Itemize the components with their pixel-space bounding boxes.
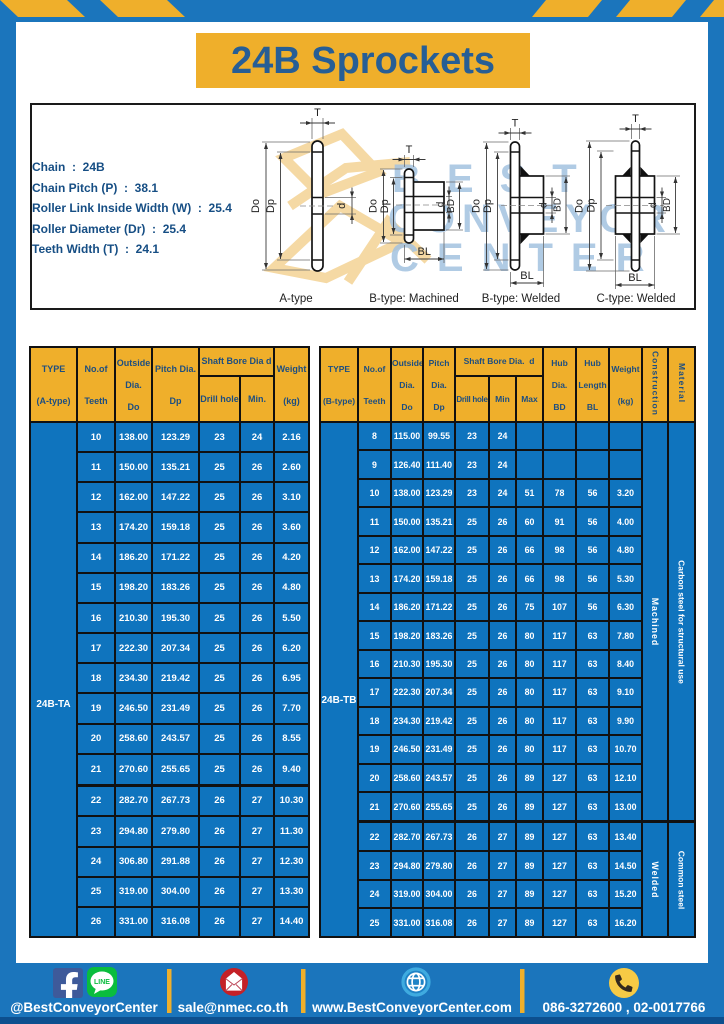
svg-text:Dp: Dp: [379, 199, 391, 213]
svg-text:d: d: [436, 202, 447, 208]
svg-text:T: T: [406, 144, 413, 156]
svg-text:BD: BD: [553, 198, 564, 212]
svg-text:B-type: Welded: B-type: Welded: [482, 293, 560, 305]
svg-text:Dp: Dp: [265, 199, 277, 213]
svg-text:Do: Do: [368, 199, 380, 213]
svg-text:BL: BL: [520, 270, 533, 282]
svg-text:Dp: Dp: [482, 199, 494, 213]
svg-text:T: T: [512, 118, 519, 130]
svg-text:A-type: A-type: [279, 293, 312, 305]
svg-text:Do: Do: [471, 199, 483, 213]
svg-text:BL: BL: [628, 272, 641, 284]
svg-text:d: d: [336, 203, 348, 209]
svg-text:B-type: Machined: B-type: Machined: [369, 293, 459, 305]
svg-text:LINE: LINE: [94, 979, 110, 986]
svg-text:BD: BD: [662, 198, 673, 212]
svg-text:Dp: Dp: [586, 198, 598, 212]
svg-text:Do: Do: [250, 199, 262, 213]
svg-text:C-type: Welded: C-type: Welded: [596, 293, 675, 305]
svg-text:BD: BD: [446, 199, 457, 213]
svg-text:d: d: [539, 202, 550, 208]
svg-text:Do: Do: [574, 199, 586, 213]
svg-text:d: d: [648, 202, 659, 208]
svg-text:T: T: [314, 107, 321, 119]
svg-text:BL: BL: [418, 246, 431, 258]
svg-text:T: T: [632, 113, 639, 125]
